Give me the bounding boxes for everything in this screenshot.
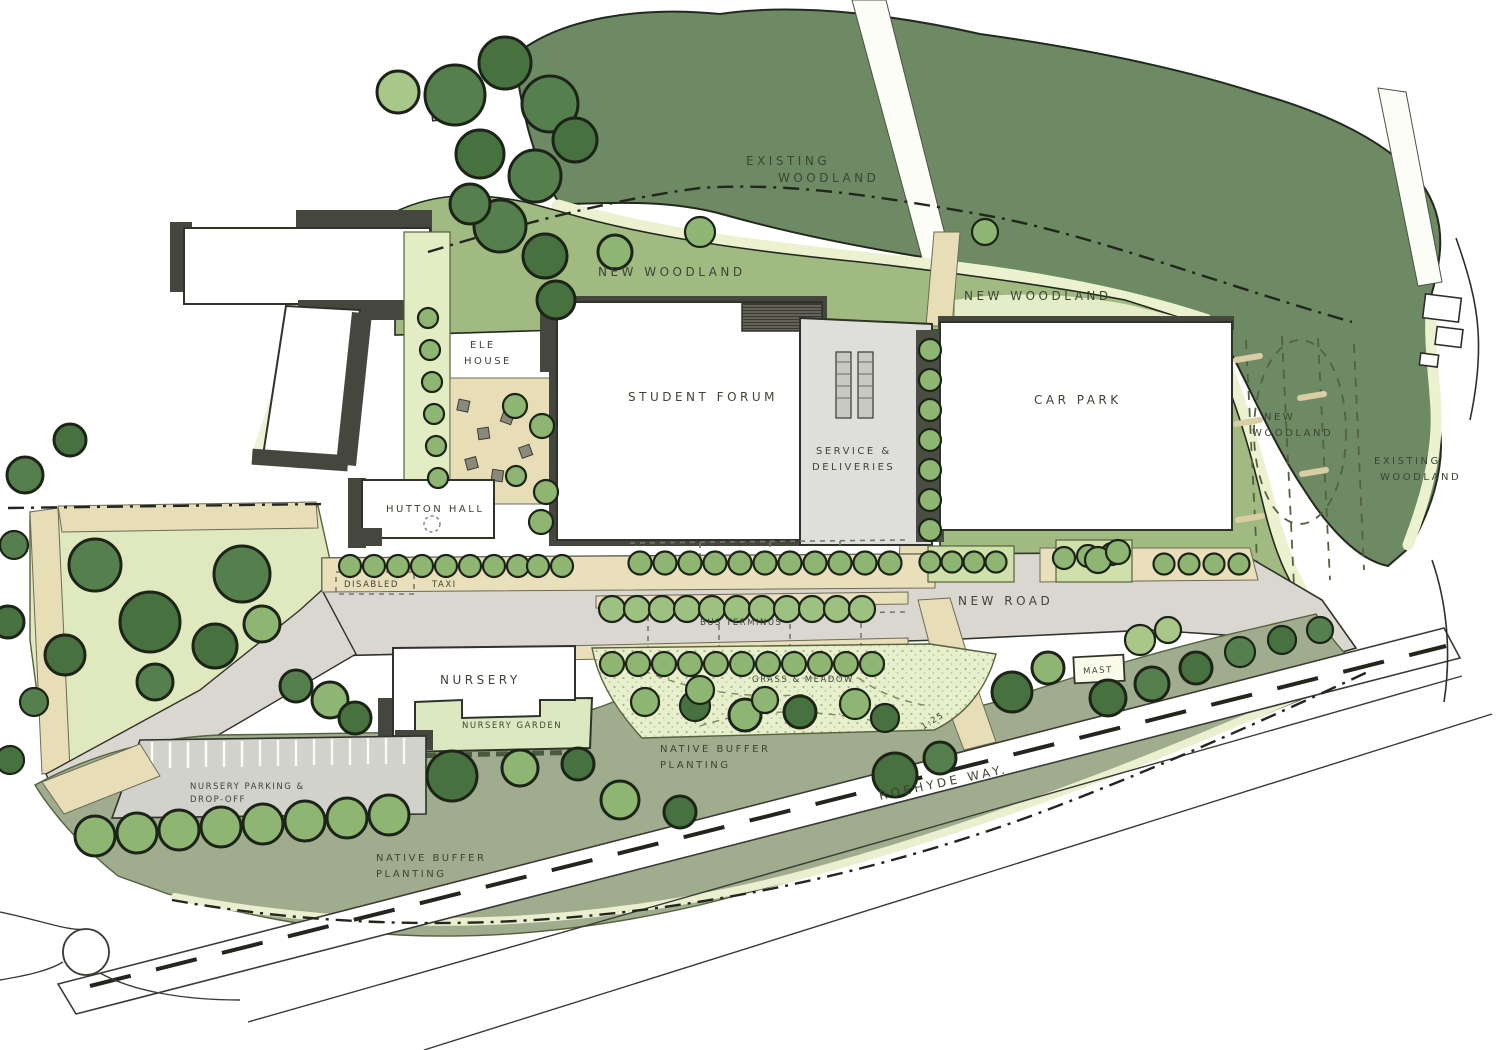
label-native-buffer-mid-2: PLANTING	[660, 760, 730, 771]
label-mast: MAST	[1083, 665, 1113, 677]
label-existing-woodland-right-2: WOODLAND	[1380, 472, 1461, 483]
tree-icon	[369, 795, 409, 835]
tree-icon	[1179, 554, 1200, 575]
label-nursery: NURSERY	[440, 673, 521, 687]
tree-icon	[425, 65, 485, 125]
tree-icon	[214, 546, 270, 602]
tree-icon	[527, 555, 549, 577]
tree-icon	[754, 552, 777, 575]
tree-icon	[879, 552, 902, 575]
tree-icon	[483, 555, 505, 577]
label-disabled: DISABLED	[344, 580, 399, 590]
tree-icon	[679, 552, 702, 575]
label-service-deliveries-1: SERVICE &	[816, 446, 892, 457]
tree-icon	[537, 281, 575, 319]
label-new-woodland-left: NEW WOODLAND	[598, 265, 746, 279]
label-existing-woodland-top-2: WOODLAND	[778, 171, 879, 185]
label-new-woodland-mid: NEW WOODLAND	[964, 289, 1112, 303]
tree-icon	[534, 480, 558, 504]
roundabout	[63, 929, 109, 975]
tree-icon	[45, 635, 85, 675]
tree-icon	[964, 552, 985, 573]
tree-icon	[562, 748, 594, 780]
label-student-forum: STUDENT FORUM	[628, 390, 778, 404]
label-native-buffer-bottom-2: PLANTING	[376, 869, 446, 880]
label-bus-terminus: BUS TERMINUS	[700, 618, 782, 628]
tree-icon	[704, 652, 728, 676]
student-forum-building	[549, 296, 827, 546]
tree-icon	[0, 531, 28, 559]
tree-icon	[450, 184, 490, 224]
label-nursery-parking-1: NURSERY PARKING &	[190, 782, 305, 792]
tree-icon	[756, 652, 780, 676]
tree-icon	[629, 552, 652, 575]
tree-icon	[1053, 547, 1075, 569]
label-native-buffer-mid-1: NATIVE BUFFER	[660, 744, 770, 755]
tree-icon	[1307, 617, 1333, 643]
tree-icon	[919, 429, 941, 451]
tree-icon	[854, 552, 877, 575]
tree-icon	[834, 652, 858, 676]
tree-icon	[422, 372, 442, 392]
masterplan-drawing: EXISTING WOODLAND NEW WOODLAND NEW WOODL…	[0, 0, 1500, 1050]
masterplan-canvas: EXISTING WOODLAND NEW WOODLAND NEW WOODL…	[0, 0, 1500, 1050]
label-ele-house-1: ELE	[470, 340, 496, 351]
tree-icon	[1229, 554, 1250, 575]
tree-icon	[523, 234, 567, 278]
tree-icon	[919, 399, 941, 421]
tree-icon	[649, 596, 675, 622]
tree-icon	[840, 689, 870, 719]
tree-icon	[972, 219, 998, 245]
tree-icon	[782, 652, 806, 676]
label-car-park: CAR PARK	[1034, 393, 1122, 407]
tree-icon	[919, 369, 941, 391]
tree-icon	[752, 687, 778, 713]
tree-icon	[456, 130, 504, 178]
tree-icon	[428, 468, 448, 488]
tree-icon	[919, 339, 941, 361]
tree-icon	[1180, 652, 1212, 684]
tree-icon	[624, 596, 650, 622]
car-park-building	[938, 316, 1234, 530]
tree-icon	[992, 672, 1032, 712]
tree-icon	[1155, 617, 1181, 643]
tree-icon	[1135, 667, 1169, 701]
tree-icon	[871, 704, 899, 732]
tree-icon	[244, 606, 280, 642]
tree-icon	[919, 519, 941, 541]
tree-icon	[193, 624, 237, 668]
label-existing-woodland-top-1: EXISTING	[746, 154, 830, 168]
tree-icon	[551, 555, 573, 577]
label-hutton-hall: HUTTON HALL	[386, 504, 484, 515]
tree-icon	[280, 670, 312, 702]
tree-icon	[502, 750, 538, 786]
tree-icon	[986, 552, 1007, 573]
tree-icon	[654, 552, 677, 575]
tree-icon	[730, 652, 754, 676]
tree-icon	[243, 804, 283, 844]
tree-icon	[1225, 637, 1255, 667]
label-taxi: TAXI	[431, 580, 457, 590]
label-new-woodland-right-1: NEW	[1264, 412, 1295, 423]
service-yard	[800, 318, 932, 545]
tree-icon	[674, 596, 700, 622]
tree-icon	[942, 552, 963, 573]
tree-icon	[678, 652, 702, 676]
tree-icon	[201, 807, 241, 847]
tree-icon	[626, 652, 650, 676]
tree-icon	[54, 424, 86, 456]
tree-icon	[506, 466, 526, 486]
tree-icon	[459, 555, 481, 577]
tree-icon	[860, 652, 884, 676]
tree-icon	[420, 340, 440, 360]
tree-icon	[1204, 554, 1225, 575]
tree-icon	[664, 796, 696, 828]
tree-icon	[507, 555, 529, 577]
tree-icon	[69, 539, 121, 591]
tree-icon	[20, 688, 48, 716]
tree-icon	[729, 552, 752, 575]
tree-icon	[849, 596, 875, 622]
tree-icon	[919, 489, 941, 511]
tree-icon	[799, 596, 825, 622]
tree-icon	[598, 235, 632, 269]
tree-icon	[411, 555, 433, 577]
tree-icon	[1268, 626, 1296, 654]
tree-icon	[0, 606, 24, 638]
label-ele-house-2: HOUSE	[464, 356, 512, 367]
tree-icon	[339, 702, 371, 734]
tree-icon	[685, 217, 715, 247]
tree-icon	[117, 813, 157, 853]
tree-icon	[529, 510, 553, 534]
label-native-buffer-bottom-1: NATIVE BUFFER	[376, 853, 486, 864]
tree-icon	[1090, 680, 1126, 716]
tree-icon	[601, 781, 639, 819]
tree-icon	[652, 652, 676, 676]
tree-icon	[1154, 554, 1175, 575]
tree-icon	[426, 436, 446, 456]
tree-icon	[418, 308, 438, 328]
tree-icon	[0, 746, 24, 774]
tree-icon	[808, 652, 832, 676]
tree-icon	[829, 552, 852, 575]
tree-icon	[924, 742, 956, 774]
tree-icon	[424, 404, 444, 424]
label-new-woodland-right-2: WOODLAND	[1252, 428, 1333, 439]
tree-icon	[285, 801, 325, 841]
tree-icon	[159, 810, 199, 850]
tree-icon	[120, 592, 180, 652]
tree-icon	[327, 798, 367, 838]
tree-icon	[530, 414, 554, 438]
tree-icon	[339, 555, 361, 577]
tree-icon	[804, 552, 827, 575]
tree-icon	[1032, 652, 1064, 684]
tree-icon	[686, 676, 714, 704]
tree-icon	[1106, 540, 1130, 564]
tree-icon	[919, 459, 941, 481]
tree-icon	[479, 37, 531, 89]
tree-icon	[7, 457, 43, 493]
label-existing-woodland-right-1: EXISTING	[1374, 456, 1441, 467]
tree-icon	[704, 552, 727, 575]
tree-icon	[75, 816, 115, 856]
tree-icon	[387, 555, 409, 577]
label-grass-meadow: GRASS & MEADOW	[752, 675, 854, 685]
tree-icon	[553, 118, 597, 162]
tree-icon	[824, 596, 850, 622]
tree-icon	[599, 596, 625, 622]
tree-icon	[427, 751, 477, 801]
label-service-deliveries-2: DELIVERIES	[812, 462, 895, 473]
tree-icon	[503, 394, 527, 418]
tree-icon	[784, 696, 816, 728]
tree-icon	[920, 552, 941, 573]
tree-icon	[435, 555, 457, 577]
tree-icon	[363, 555, 385, 577]
tree-icon	[600, 652, 624, 676]
tree-icon	[631, 688, 659, 716]
label-nursery-parking-2: DROP-OFF	[190, 795, 246, 805]
label-new-road: NEW ROAD	[958, 594, 1053, 608]
tree-icon	[509, 150, 561, 202]
label-nursery-garden: NURSERY GARDEN	[462, 721, 562, 731]
tree-icon	[137, 664, 173, 700]
tree-icon	[1125, 625, 1155, 655]
tree-icon	[377, 71, 419, 113]
tree-icon	[779, 552, 802, 575]
